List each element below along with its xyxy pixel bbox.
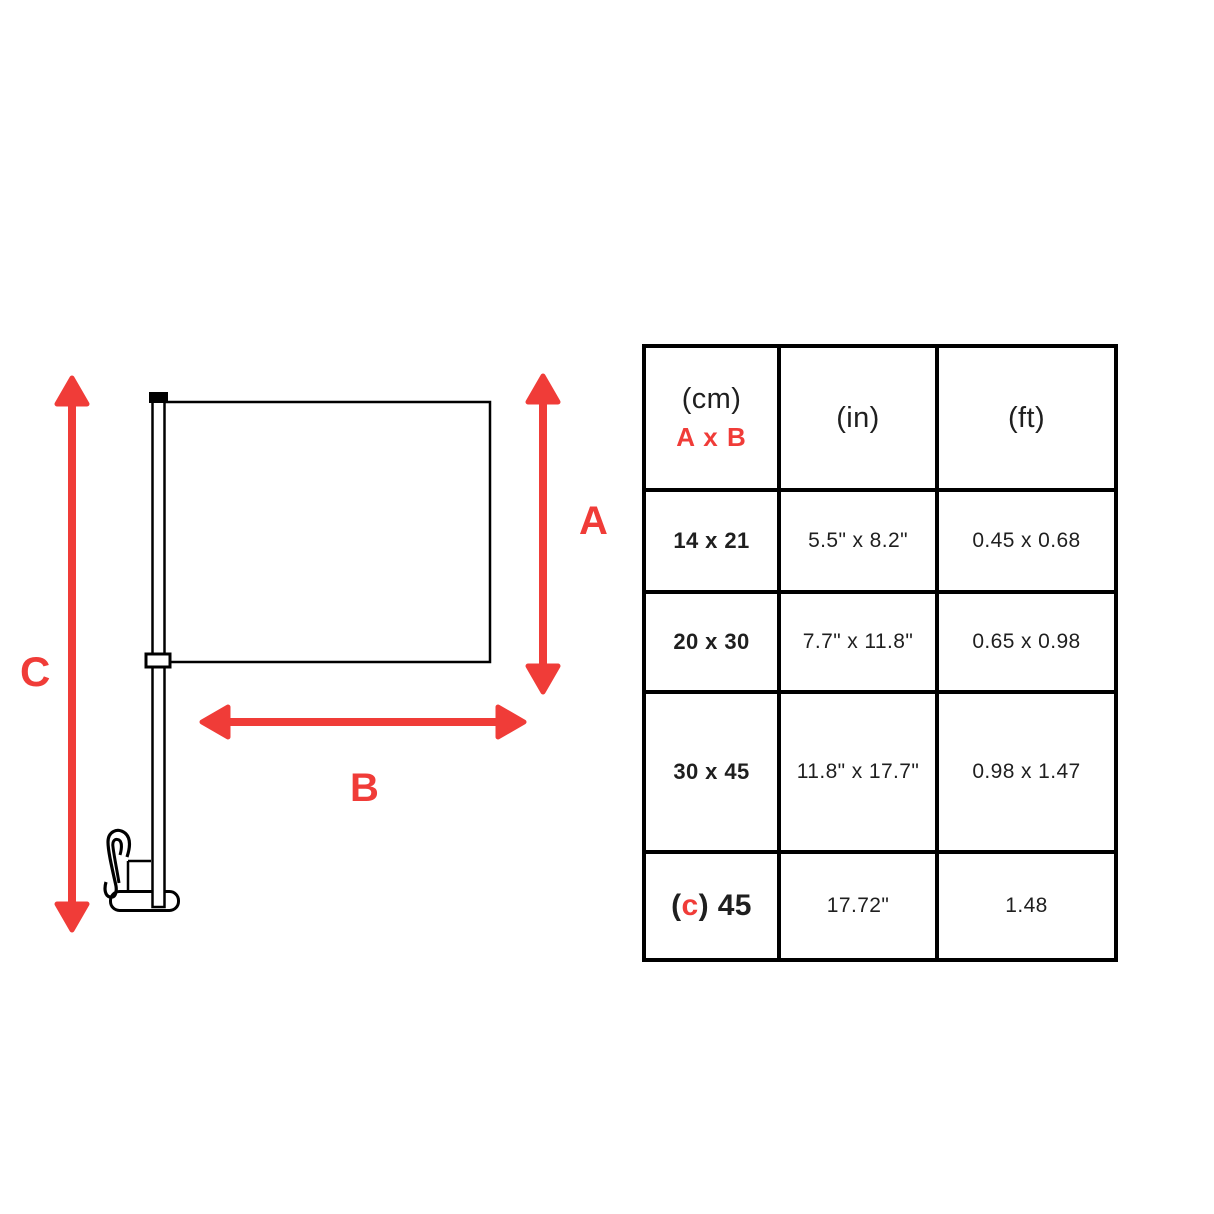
table-cell-in: 5.5" x 8.2" [781, 492, 935, 590]
header-cm-label: (cm) [682, 383, 742, 416]
size-ft-value: 0.65 x 0.98 [972, 630, 1080, 654]
pole-cap-icon [149, 392, 168, 403]
table-cell-in: 17.72" [781, 854, 935, 958]
size-ft-value: 0.98 x 1.47 [972, 760, 1080, 784]
clip-base [111, 892, 179, 911]
header-cell-ft: (ft) [939, 348, 1114, 488]
dimension-arrow-a [528, 376, 558, 692]
header-cell-in: (in) [781, 348, 935, 488]
size-in-value: 7.7" x 11.8" [803, 630, 913, 654]
table-cell-ft: 0.65 x 0.98 [939, 594, 1114, 690]
table-cell-in: 11.8" x 17.7" [781, 694, 935, 850]
size-cm-label: 14 x 21 [673, 528, 749, 554]
c-rest: ) 45 [699, 889, 752, 922]
size-in-value: 17.72" [827, 894, 889, 918]
header-in-label: (in) [836, 402, 880, 435]
flag-canvas [163, 402, 490, 662]
table-cell-cm: 20 x 30 [646, 594, 777, 690]
table-cell-cm: 14 x 21 [646, 492, 777, 590]
size-cm-label: 20 x 30 [673, 629, 749, 655]
size-in-value: 11.8" x 17.7" [797, 760, 919, 784]
table-cell-cm: (c) 45 [646, 854, 777, 958]
pole-collar [146, 654, 170, 667]
header-ft-label: (ft) [1008, 402, 1045, 435]
table-cell-ft: 0.45 x 0.68 [939, 492, 1114, 590]
size-cm-label: 30 x 45 [673, 759, 749, 785]
table-cell-ft: 1.48 [939, 854, 1114, 958]
dimension-arrow-b [202, 707, 524, 737]
size-table: (cm) A x B (in) (ft) 14 x 21 5.5" x 8.2"… [642, 344, 1118, 962]
c-letter: c [682, 889, 699, 922]
table-cell-in: 7.7" x 11.8" [781, 594, 935, 690]
table-cell-ft: 0.98 x 1.47 [939, 694, 1114, 850]
flag-pole [153, 397, 165, 907]
dimension-arrow-c [57, 378, 87, 930]
paren-open: ( [671, 889, 681, 922]
window-clip-icon [105, 830, 151, 897]
size-ft-value: 1.48 [1005, 894, 1047, 918]
dimension-label-a: A [579, 501, 608, 541]
dimension-label-c: C [20, 651, 50, 693]
car-flag-size-chart: A B C (cm) A x B (in) (ft) 14 x 21 5.5" … [0, 0, 1214, 1214]
header-axb-label: A x B [676, 422, 747, 453]
size-c-label: (c) 45 [671, 889, 752, 923]
table-cell-cm: 30 x 45 [646, 694, 777, 850]
size-in-value: 5.5" x 8.2" [808, 529, 908, 553]
dimension-label-b: B [350, 768, 379, 808]
header-cell-cm: (cm) A x B [646, 348, 777, 488]
size-ft-value: 0.45 x 0.68 [972, 529, 1080, 553]
